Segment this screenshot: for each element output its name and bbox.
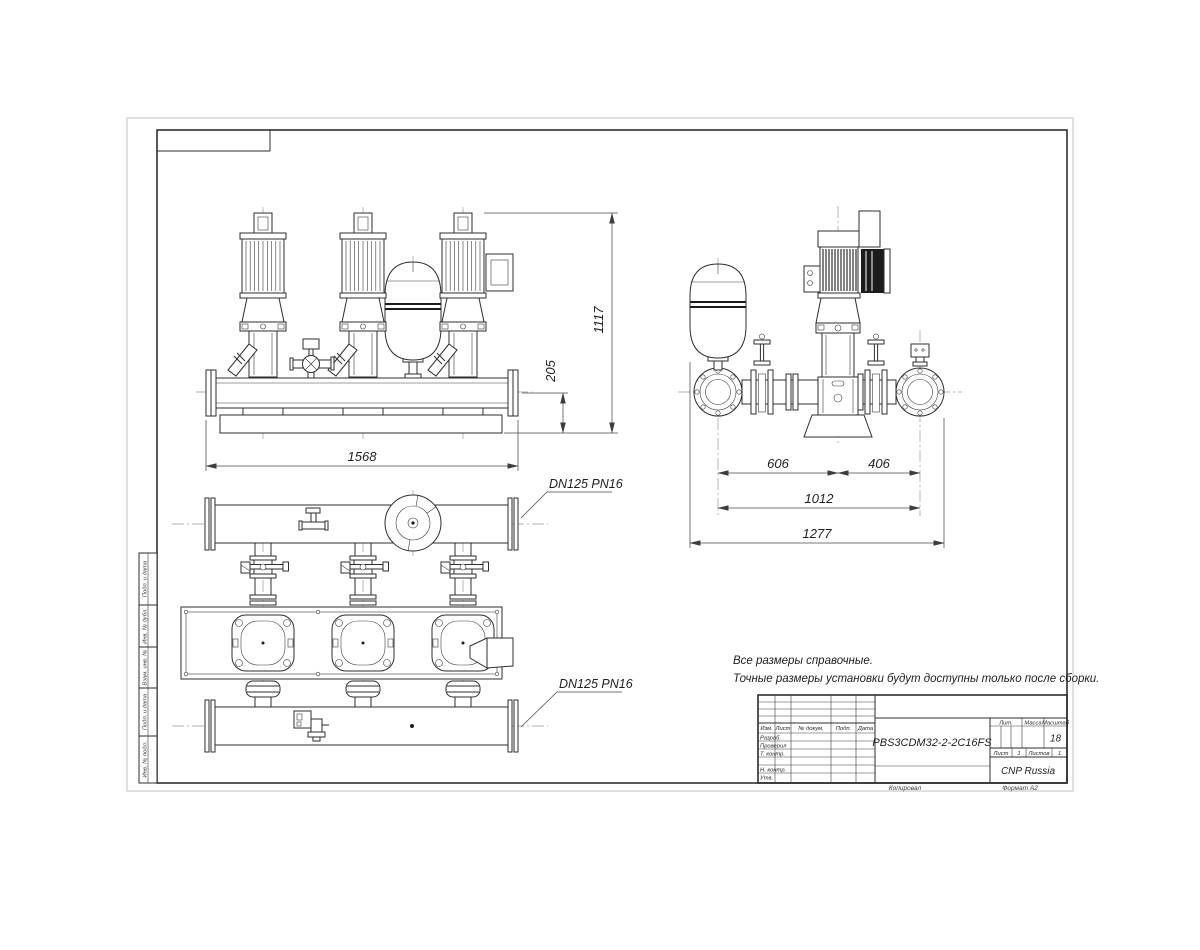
corner-reference-box <box>157 130 270 151</box>
tb-row-tkontr: Т. контр. <box>760 752 785 758</box>
front-view <box>196 207 532 440</box>
dimension-606: 606 <box>767 456 789 471</box>
pilot-valve-front <box>290 339 334 378</box>
flange-callouts: DN125 PN16 DN125 PN16 <box>521 477 633 727</box>
butterfly-valve-side-2 <box>865 334 887 414</box>
branch-plan-2 <box>341 543 389 605</box>
margin-stamp-label-5: Инв. № подл. <box>143 742 149 778</box>
discharge-flange-circle <box>896 344 944 416</box>
pump-plan-2 <box>332 615 394 671</box>
tb-sheets-total: 1 <box>1058 751 1061 757</box>
dimension-1568: 1568 <box>348 449 378 464</box>
tb-header-data: Дата <box>857 726 874 732</box>
lower-branch-plan-2 <box>346 681 380 707</box>
dn-label-bottom: DN125 PN16 <box>559 677 633 691</box>
margin-stamp-label-2: Инв. № дубл. <box>143 608 149 644</box>
plan-view <box>172 490 548 752</box>
side-view <box>678 206 962 516</box>
margin-stamp-label-3: Взам. инв. № <box>143 650 149 686</box>
tb-header-lit: Лит. <box>998 721 1013 727</box>
tb-row-nkontr: Н. контр. <box>760 768 786 774</box>
centerline-point <box>410 724 414 728</box>
pump-bracket <box>804 266 820 292</box>
tb-scale-value: 18 <box>1050 734 1062 745</box>
tb-sheet-number: 1 <box>1017 751 1020 757</box>
tb-footer-copied: Копировал <box>889 785 922 792</box>
note-line-1: Все размеры справочные. <box>733 655 873 667</box>
branch-plan-1 <box>241 543 289 605</box>
pump-pedestal-side <box>804 415 872 437</box>
diaphragm-tank-plan <box>385 495 441 551</box>
tb-header-massa: Масса <box>1024 721 1042 727</box>
tb-header-masshtab: Масштаб <box>1042 721 1070 727</box>
margin-stamp-label-4: Подп. и дата <box>143 693 149 730</box>
tb-designation: PBS3CDM32-2-2C16FS <box>872 737 992 749</box>
dimension-1012: 1012 <box>805 491 835 506</box>
drawing-sheet: Подп. и дата Инв. № дубл. Взам. инв. № П… <box>0 0 1200 950</box>
lower-branch-plan-3 <box>446 681 480 707</box>
diaphragm-tank-front <box>385 262 441 378</box>
dimension-205: 205 <box>543 359 558 382</box>
pump-plan-1 <box>232 615 294 671</box>
margin-stamps: Подп. и дата Инв. № дубл. Взам. инв. № П… <box>139 553 157 783</box>
control-box-front <box>486 254 513 291</box>
tb-header-listov: Листов <box>1027 751 1049 757</box>
suction-flange-circle <box>694 368 742 416</box>
branch-plan-3 <box>441 543 489 605</box>
pump-front-2 <box>328 213 386 377</box>
title-block: Изм. Лист № докум. Подп. Дата Разраб. Пр… <box>758 695 1070 792</box>
dimension-406: 406 <box>868 456 890 471</box>
note-line-2: Точные размеры установки будут доступны … <box>733 673 1099 685</box>
tb-footer-format: Формат А2 <box>1002 785 1038 792</box>
tb-row-prover: Проверил <box>760 744 787 750</box>
tb-header-list: Лист <box>775 726 791 732</box>
terminal-box <box>859 211 880 247</box>
tb-header-izm: Изм. <box>760 726 772 732</box>
dimension-1117: 1117 <box>591 306 606 334</box>
pump-front-1 <box>228 213 286 377</box>
tb-header-doc: № докум. <box>798 726 824 732</box>
notes: Все размеры справочные. Точные размеры у… <box>733 655 1099 685</box>
lower-branch-plan-1 <box>246 681 280 707</box>
pressure-sensor <box>911 344 929 357</box>
suction-pipe-plan <box>205 700 518 752</box>
tb-row-utv: Утв. <box>759 776 773 782</box>
butterfly-valve-side-1 <box>751 334 773 414</box>
tb-company: CNP Russia <box>1001 766 1056 777</box>
diaphragm-tank-side <box>690 264 746 370</box>
discharge-pipe-plan <box>205 498 518 550</box>
tb-header-list2: Лист <box>993 751 1009 757</box>
dn-label-top: DN125 PN16 <box>549 477 623 491</box>
baseplate-front <box>220 415 502 433</box>
dimension-1277: 1277 <box>803 526 833 541</box>
margin-stamp-label-1: Подп. и дата <box>143 560 149 597</box>
tb-header-podp: Подп. <box>836 726 851 732</box>
tb-row-razrab: Разраб. <box>760 736 781 742</box>
